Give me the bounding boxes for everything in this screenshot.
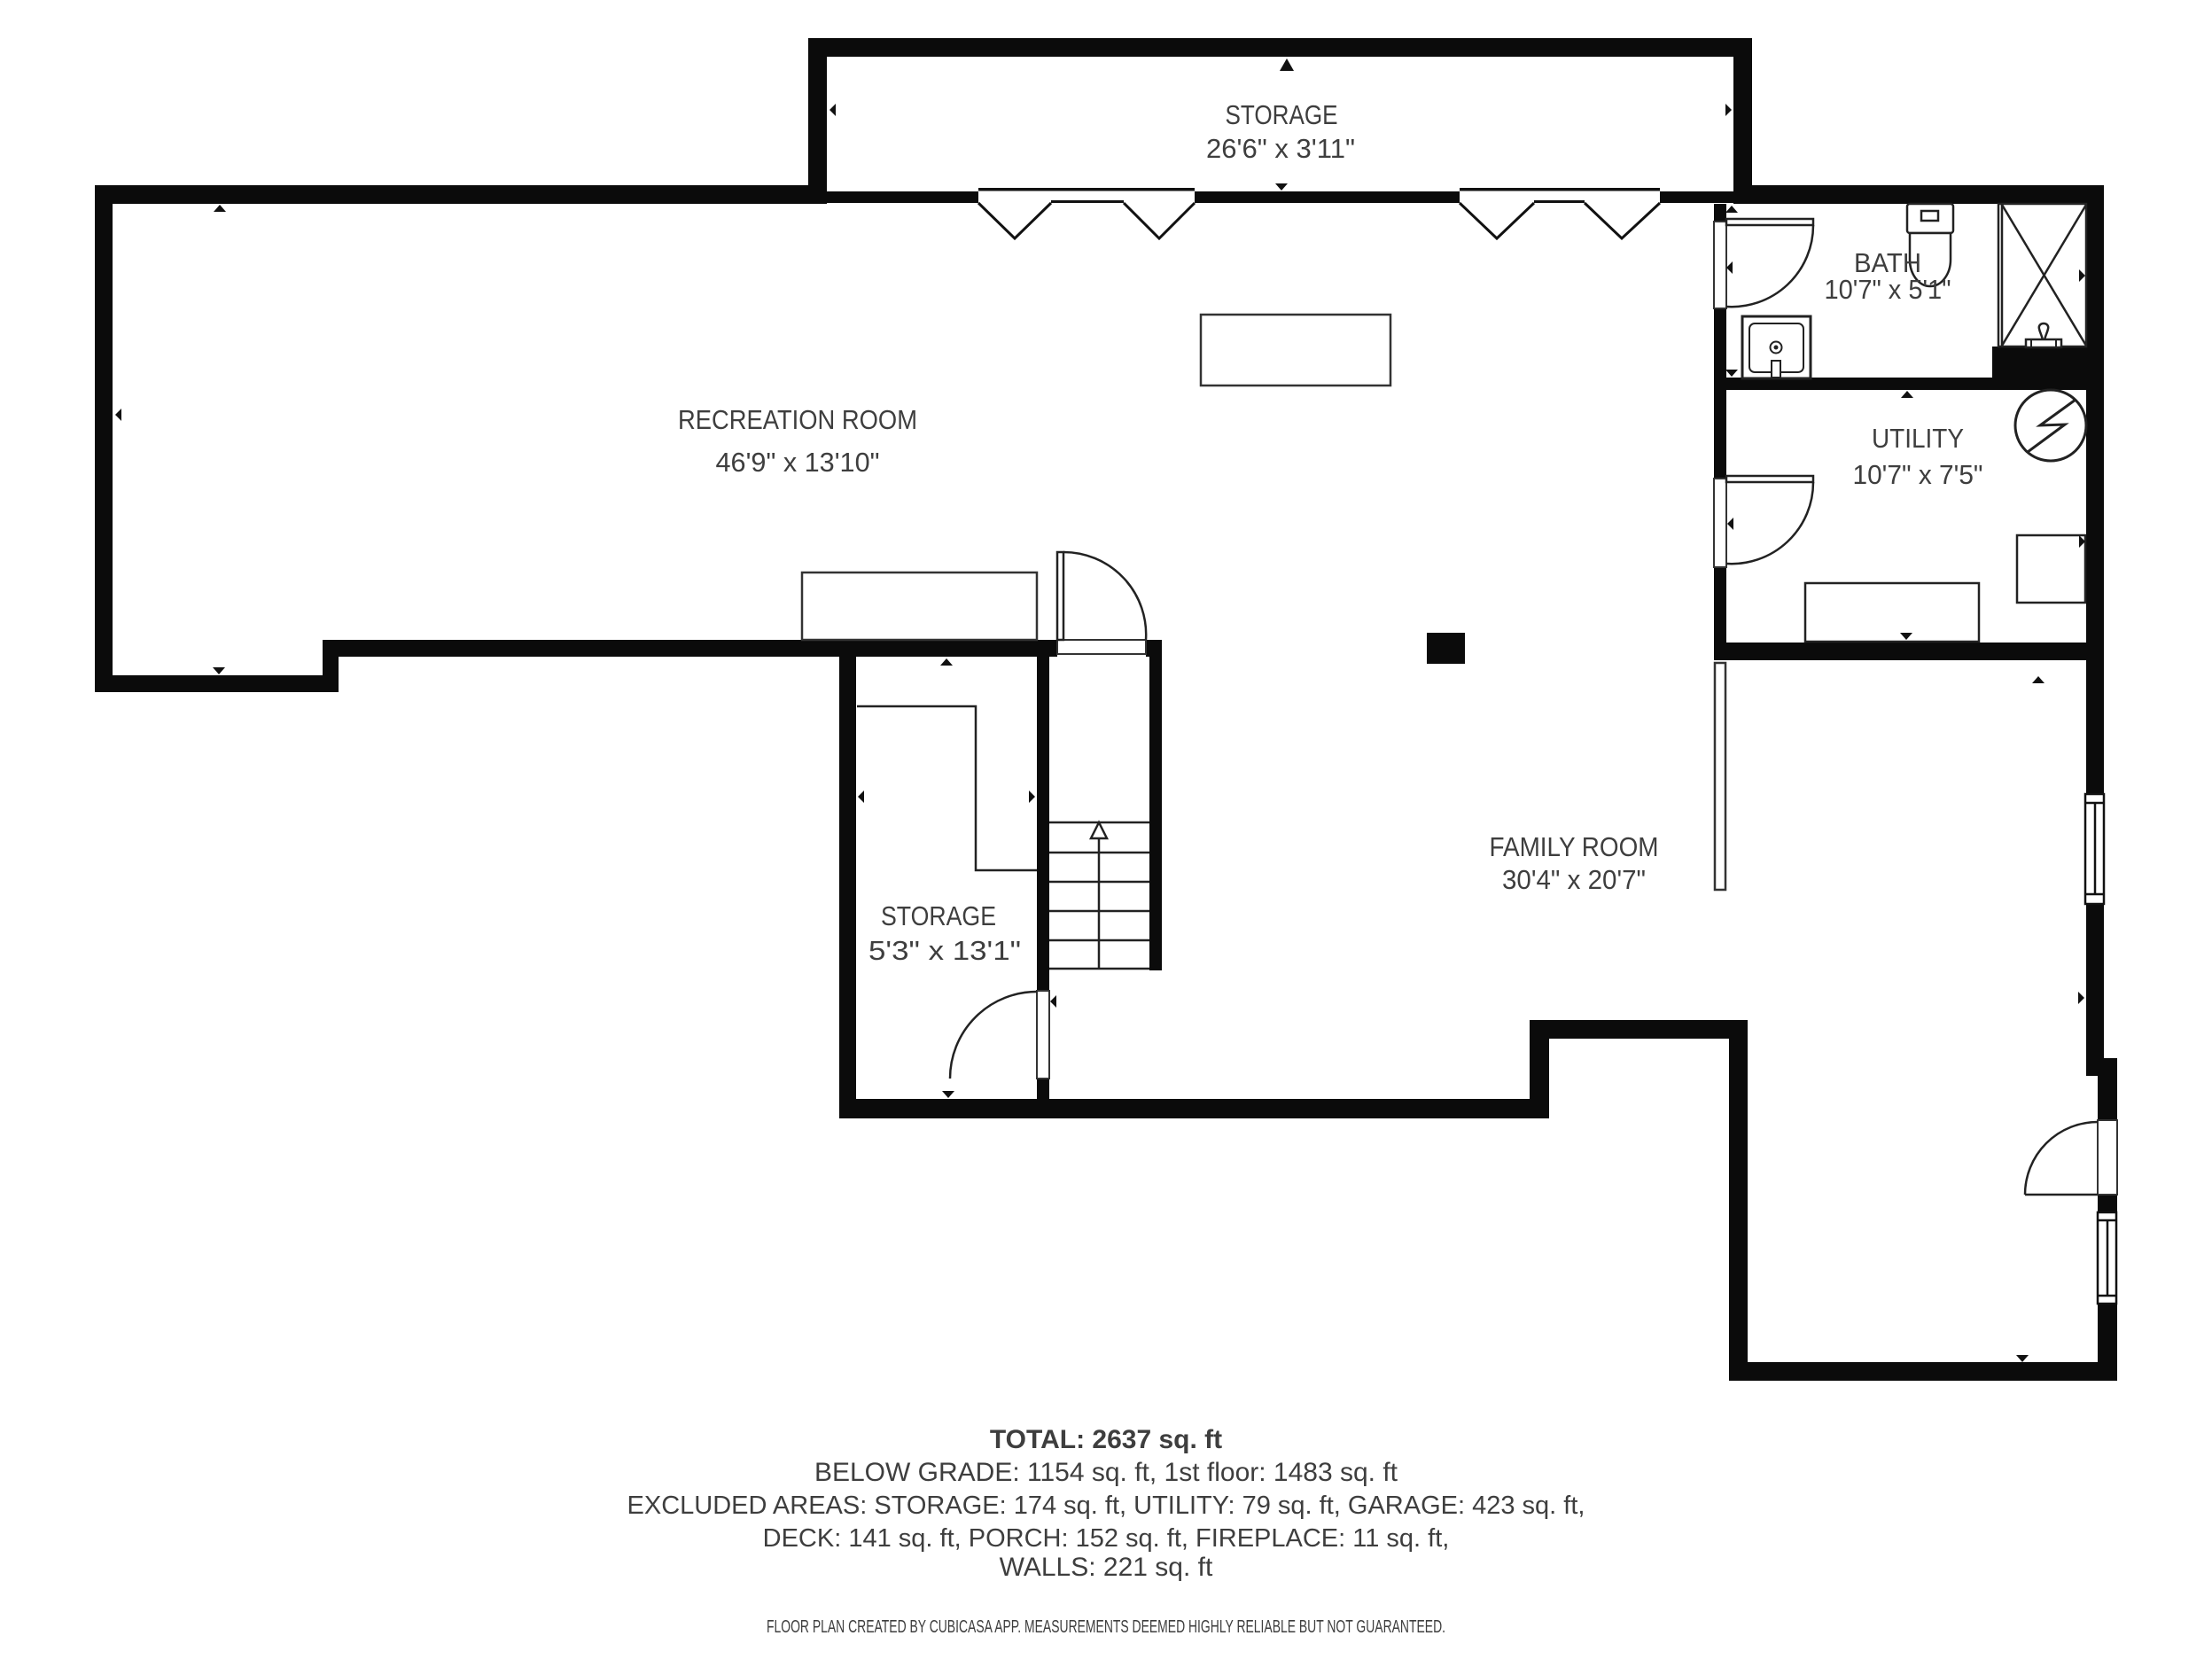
svg-text:DECK: 141 sq. ft, PORCH: 152 s: DECK: 141 sq. ft, PORCH: 152 sq. ft, FIR… (763, 1524, 1450, 1553)
svg-text:26'6" x 3'11": 26'6" x 3'11" (1206, 133, 1355, 164)
svg-text:WALLS: 221 sq. ft: WALLS: 221 sq. ft (1000, 1553, 1213, 1582)
svg-text:TOTAL: 2637 sq. ft: TOTAL: 2637 sq. ft (990, 1425, 1222, 1454)
svg-text:RECREATION ROOM: RECREATION ROOM (678, 404, 917, 435)
svg-text:STORAGE: STORAGE (881, 900, 996, 931)
svg-text:BELOW GRADE: 1154 sq. ft, 1st: BELOW GRADE: 1154 sq. ft, 1st floor: 148… (814, 1458, 1398, 1487)
svg-text:5'3" x 13'1": 5'3" x 13'1" (868, 935, 1021, 966)
svg-text:UTILITY: UTILITY (1872, 423, 1964, 454)
svg-text:EXCLUDED AREAS: STORAGE: 174 s: EXCLUDED AREAS: STORAGE: 174 sq. ft, UTI… (627, 1492, 1585, 1520)
svg-text:10'7" x 7'5": 10'7" x 7'5" (1853, 459, 1983, 490)
svg-text:FLOOR PLAN CREATED BY CUBICASA: FLOOR PLAN CREATED BY CUBICASA APP. MEAS… (767, 1617, 1445, 1637)
svg-text:46'9" x 13'10": 46'9" x 13'10" (716, 447, 880, 478)
svg-text:10'7" x 5'1": 10'7" x 5'1" (1825, 274, 1951, 305)
svg-text:STORAGE: STORAGE (1226, 99, 1338, 130)
svg-text:FAMILY ROOM: FAMILY ROOM (1490, 831, 1659, 862)
svg-text:30'4" x 20'7": 30'4" x 20'7" (1502, 864, 1646, 895)
